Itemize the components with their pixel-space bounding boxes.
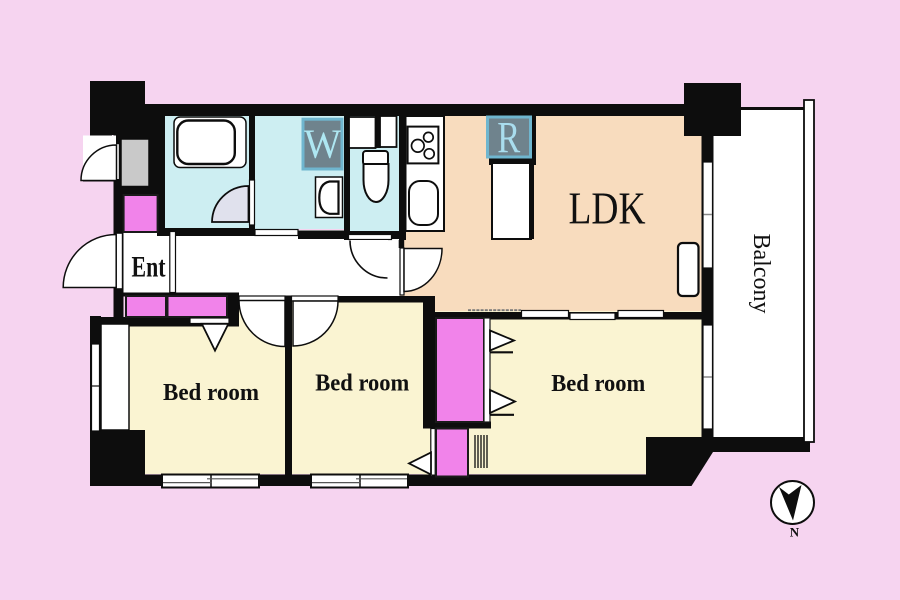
svg-text:Bed room: Bed room <box>315 371 409 397</box>
svg-text:Bed room: Bed room <box>551 371 645 397</box>
svg-text:W: W <box>304 121 341 167</box>
svg-text:R: R <box>497 113 521 162</box>
svg-text:LDK: LDK <box>569 183 646 234</box>
svg-text:Bed room: Bed room <box>163 380 259 406</box>
svg-text:Ent: Ent <box>132 250 166 283</box>
svg-text:N: N <box>790 525 800 540</box>
svg-text:Balcony: Balcony <box>748 234 774 314</box>
